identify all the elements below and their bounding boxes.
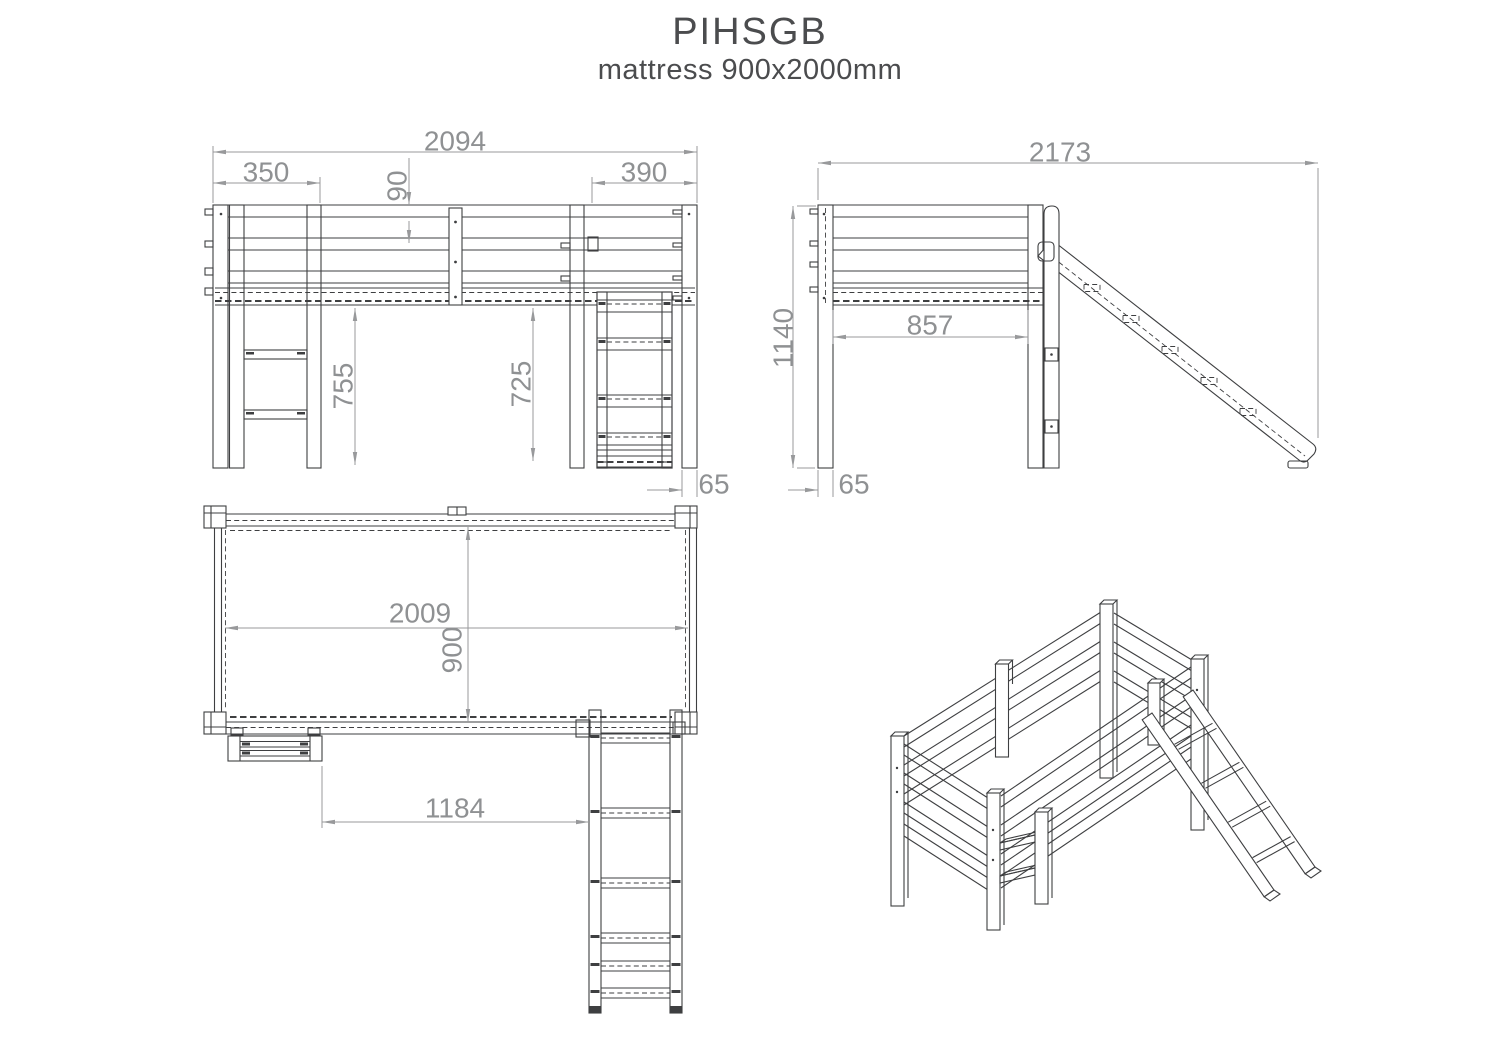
- dim-front-overall-width: 2094: [424, 126, 486, 157]
- drawing-canvas: 2094 350 390 90 755 725 65: [0, 0, 1500, 1060]
- dim-side-overall-height: 1140: [768, 308, 799, 368]
- dim-side-inner-depth: 857: [907, 310, 954, 341]
- dim-front-slide-clear-height: 725: [506, 361, 537, 408]
- dim-plan-ladder-to-slide: 1184: [425, 793, 485, 824]
- plan-view: 2009 900 1184: [204, 506, 697, 1013]
- isometric-view: [891, 600, 1321, 930]
- dim-side-post-width: 65: [838, 469, 869, 500]
- dim-front-post-offset: 65: [698, 469, 729, 500]
- dim-plan-inner-length: 2009: [389, 598, 451, 629]
- side-view: 2173 1140 857 65: [768, 137, 1319, 500]
- dim-plan-inner-width: 900: [437, 627, 468, 674]
- technical-drawing-page: { "title": "PIHSGB", "subtitle": "mattre…: [0, 0, 1500, 1060]
- dim-front-ladder-section: 350: [243, 157, 290, 188]
- dim-front-rail-gap: 90: [382, 170, 413, 201]
- dim-front-slide-section: 390: [621, 157, 668, 188]
- dim-side-overall-depth: 2173: [1029, 137, 1091, 168]
- front-view: 2094 350 390 90 755 725 65: [205, 126, 730, 500]
- dim-front-under-bed-height: 755: [328, 363, 359, 410]
